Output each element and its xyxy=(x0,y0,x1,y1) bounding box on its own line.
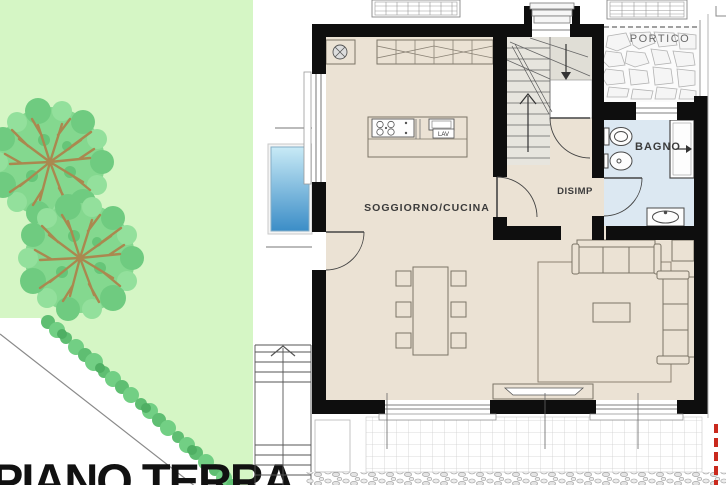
window-bottom-2 xyxy=(590,400,683,420)
toilet-icon xyxy=(604,128,632,146)
tv-unit xyxy=(493,384,593,399)
coffee-table xyxy=(593,303,630,322)
chair xyxy=(396,302,411,317)
stair-landing xyxy=(550,80,592,118)
pergola-grid xyxy=(607,0,687,19)
bidet-icon xyxy=(604,152,632,170)
kitchen-cabinet-row xyxy=(377,40,493,64)
pergola-grid xyxy=(372,0,460,17)
terrace-planter xyxy=(315,420,350,472)
sofa xyxy=(572,240,661,274)
ground-floor-plan: PIANO TERRA xyxy=(0,0,726,485)
room-label-living-kitchen: SOGGIORNO/CUCINA xyxy=(364,202,490,214)
sofa xyxy=(657,271,695,364)
sink-label: LAV xyxy=(438,132,449,138)
chair xyxy=(451,271,466,286)
side-table xyxy=(672,240,694,261)
room-label-hallway: DISIMP xyxy=(557,186,593,197)
chair xyxy=(396,333,411,348)
boiler-cabinet xyxy=(326,40,355,64)
front-door-opening xyxy=(532,24,570,37)
terrace-tiles xyxy=(366,417,702,472)
dining-table xyxy=(396,267,466,355)
entry-steps xyxy=(530,3,574,23)
chair xyxy=(451,333,466,348)
gravel-strip xyxy=(306,472,726,485)
bathroom-window xyxy=(633,102,680,120)
page-title: PIANO TERRA xyxy=(0,454,295,485)
room-label-bathroom: BAGNO xyxy=(635,141,681,153)
window-bottom-1 xyxy=(379,400,496,420)
window-left xyxy=(304,72,326,184)
stair-winder-floor xyxy=(550,37,592,80)
plan-drawing: PIANO TERRA xyxy=(0,0,726,485)
chair xyxy=(396,271,411,286)
washbasin-icon xyxy=(647,208,684,226)
chair xyxy=(451,302,466,317)
stove-icon xyxy=(372,119,414,137)
room-label-porch: PORTICO xyxy=(630,33,690,45)
